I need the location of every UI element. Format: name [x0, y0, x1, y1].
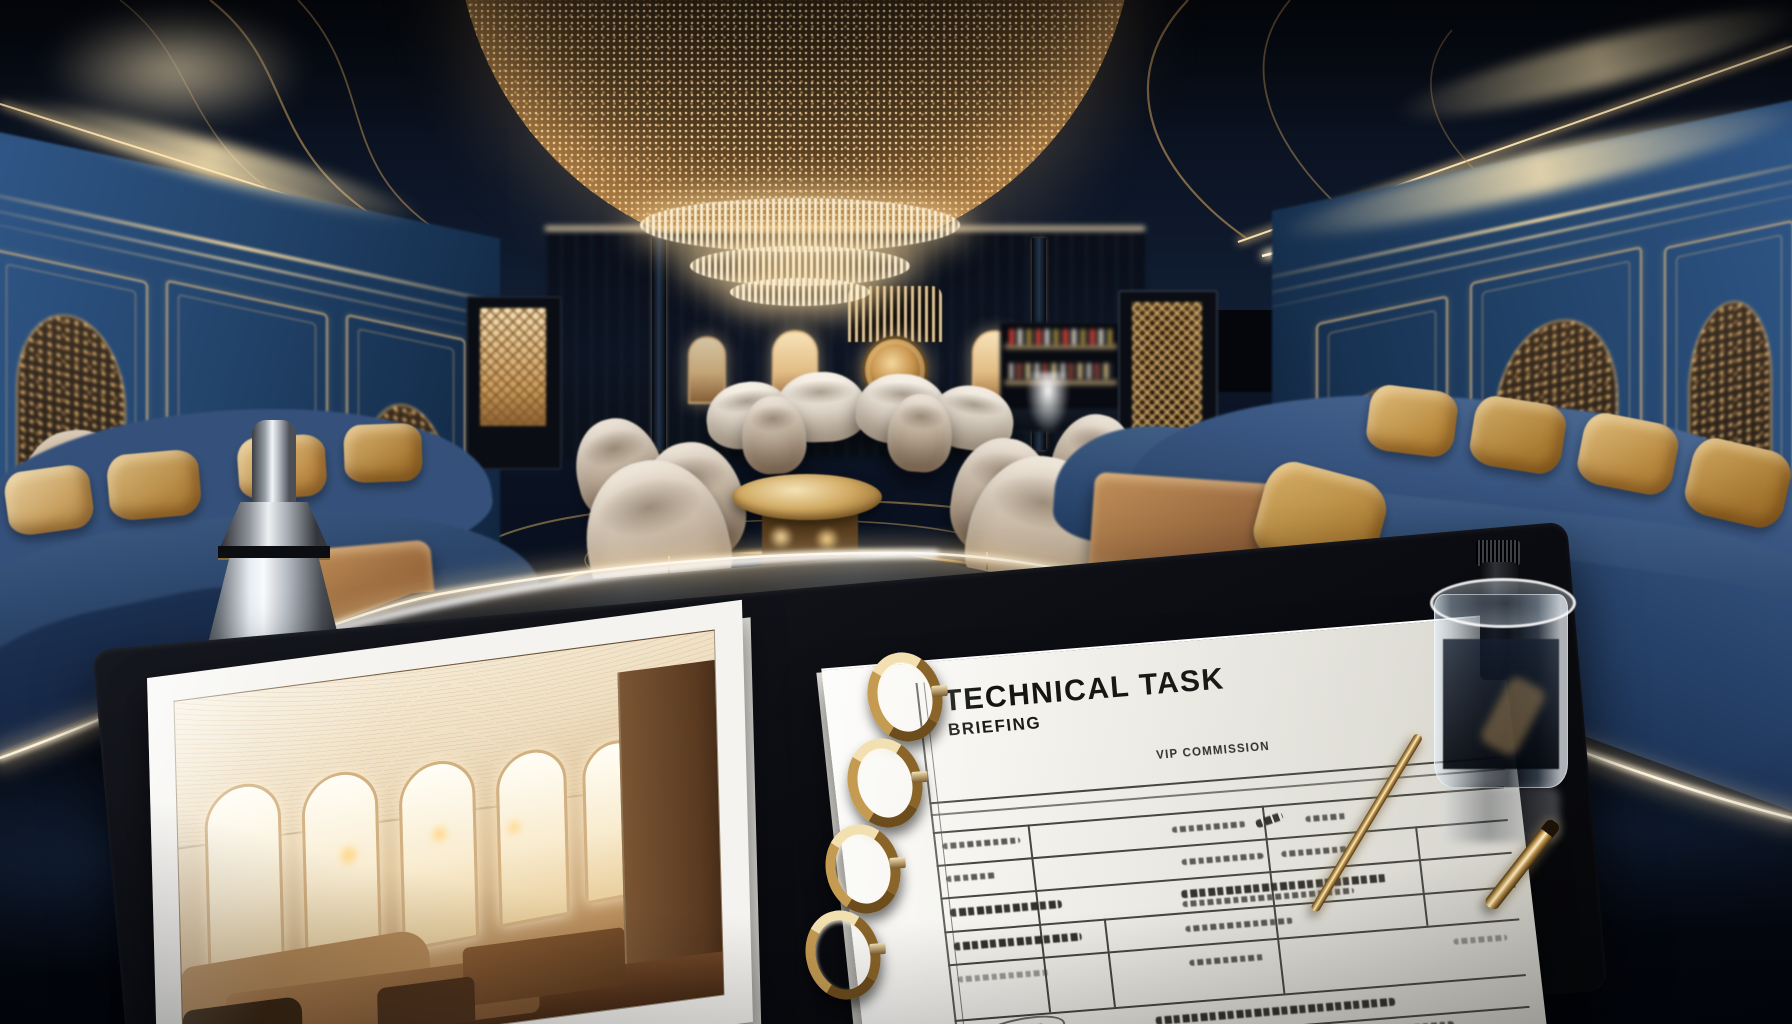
- cabinet-glow-lattice: [480, 308, 546, 426]
- feather-lamp: [1026, 372, 1070, 434]
- carafe-collar: [218, 502, 330, 552]
- lounge-scene: TECHNICAL TASK BRIEFING VIP COMMISSION: [0, 0, 1792, 1024]
- display-cabinet-left: [466, 296, 562, 470]
- bar-bottles: [1009, 329, 1113, 345]
- sofa-pillow: [1364, 383, 1459, 459]
- chandelier-ring-tier: [640, 198, 960, 252]
- carafe-band: [218, 546, 330, 560]
- cabinet-gold-lattice: [1132, 302, 1202, 438]
- tumbler-glass: [1430, 548, 1570, 848]
- chandelier-ring-tier: [730, 278, 870, 306]
- glass-rim: [1430, 578, 1576, 628]
- shelf-light: [1005, 345, 1117, 348]
- carafe-stopper: [252, 420, 296, 508]
